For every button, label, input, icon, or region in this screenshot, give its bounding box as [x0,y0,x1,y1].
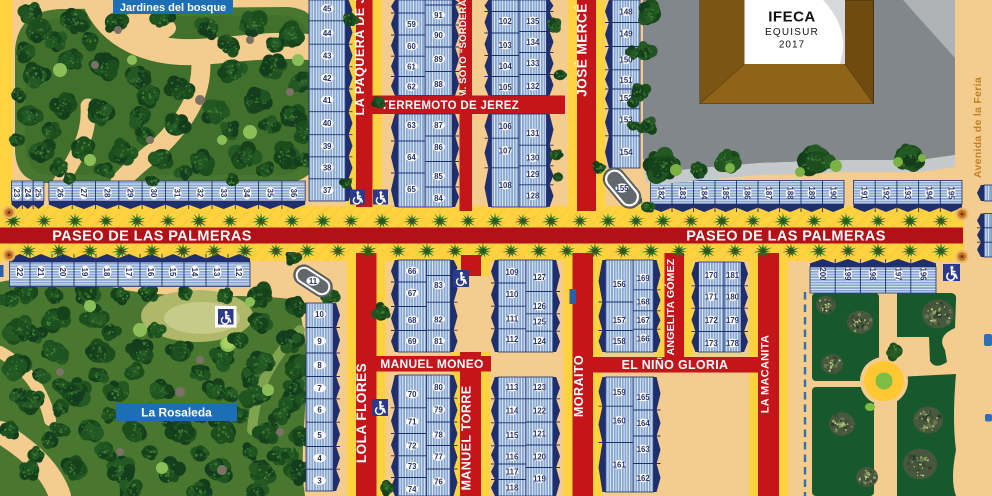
svg-text:197: 197 [893,267,902,280]
svg-text:36: 36 [289,189,298,198]
svg-text:180: 180 [726,292,740,301]
svg-text:82: 82 [434,315,443,324]
svg-text:77: 77 [434,452,443,461]
svg-text:199: 199 [843,267,852,281]
svg-text:113: 113 [506,383,519,392]
svg-text:185: 185 [721,186,730,200]
svg-text:PASEO DE LAS PALMERAS: PASEO DE LAS PALMERAS [686,229,886,245]
svg-text:M. SOTO “SORDERA”: M. SOTO “SORDERA” [458,0,469,97]
svg-text:116: 116 [506,452,519,461]
svg-text:165: 165 [637,393,651,402]
svg-text:ANGELITA GÓMEZ: ANGELITA GÓMEZ [664,258,677,355]
svg-text:16: 16 [146,268,155,277]
svg-text:184: 184 [699,186,708,200]
svg-text:71: 71 [408,417,417,426]
svg-text:104: 104 [499,62,513,71]
svg-text:160: 160 [613,416,627,425]
svg-text:186: 186 [742,186,751,200]
svg-text:134: 134 [526,38,540,47]
svg-text:188: 188 [785,186,794,200]
svg-text:61: 61 [407,62,416,71]
svg-text:59: 59 [407,20,416,29]
svg-text:191: 191 [860,186,869,200]
svg-text:114: 114 [506,406,519,415]
svg-text:192: 192 [881,186,890,200]
svg-text:105: 105 [499,83,513,92]
svg-text:62: 62 [407,82,416,91]
svg-text:41: 41 [323,96,332,105]
svg-text:151: 151 [619,76,633,85]
svg-text:168: 168 [637,297,651,306]
svg-text:85: 85 [434,172,443,181]
svg-text:119: 119 [533,474,546,483]
svg-text:67: 67 [408,289,417,298]
svg-text:28: 28 [102,189,111,198]
svg-text:JOSÉ MERCÉ: JOSÉ MERCÉ [575,3,590,97]
svg-text:107: 107 [499,146,512,155]
svg-text:LA MACANITA: LA MACANITA [760,335,772,413]
svg-text:22: 22 [15,268,24,277]
svg-text:34: 34 [242,189,251,198]
svg-text:183: 183 [678,186,687,200]
svg-text:171: 171 [705,292,719,301]
svg-text:72: 72 [408,441,417,450]
svg-text:193: 193 [903,186,912,200]
svg-text:5: 5 [317,431,322,440]
svg-text:20: 20 [58,268,67,277]
svg-text:37: 37 [323,186,332,195]
svg-text:91: 91 [434,11,443,20]
svg-text:14: 14 [190,268,199,277]
svg-text:MANUEL TORRE: MANUEL TORRE [460,385,474,490]
svg-text:170: 170 [705,271,719,280]
svg-text:MANUEL MONEO: MANUEL MONEO [380,357,483,371]
svg-text:76: 76 [434,477,443,486]
svg-text:MORAITO: MORAITO [572,355,586,417]
svg-text:110: 110 [506,290,519,299]
svg-text:40: 40 [323,119,332,128]
svg-text:102: 102 [499,17,513,26]
svg-text:161: 161 [613,460,627,469]
svg-text:169: 169 [637,274,651,283]
svg-text:166: 166 [637,334,651,343]
svg-text:26: 26 [56,189,65,198]
svg-text:25: 25 [34,189,43,198]
svg-text:73: 73 [408,462,417,471]
svg-text:148: 148 [619,7,633,16]
svg-text:84: 84 [434,194,443,203]
svg-text:2017: 2017 [779,40,805,51]
svg-text:83: 83 [434,281,443,290]
svg-text:PASEO DE LAS PALMERAS: PASEO DE LAS PALMERAS [52,229,252,245]
svg-text:195: 195 [946,186,955,200]
svg-text:162: 162 [637,474,651,483]
svg-text:130: 130 [526,153,540,162]
svg-text:109: 109 [505,268,519,277]
svg-text:149: 149 [619,29,633,38]
svg-text:31: 31 [172,189,181,198]
svg-text:63: 63 [407,121,416,130]
svg-text:65: 65 [407,185,416,194]
svg-text:128: 128 [526,191,540,200]
svg-text:196: 196 [919,267,928,281]
svg-text:124: 124 [533,337,547,346]
svg-text:156: 156 [613,280,627,289]
svg-text:178: 178 [726,339,740,348]
svg-text:17: 17 [124,268,133,277]
svg-text:13: 13 [212,268,221,277]
svg-text:78: 78 [434,430,443,439]
svg-text:79: 79 [434,405,443,414]
svg-text:33: 33 [219,189,228,198]
svg-text:133: 133 [526,59,540,68]
svg-text:167: 167 [637,316,650,325]
svg-text:10: 10 [315,310,324,319]
svg-text:182: 182 [656,186,665,200]
svg-text:131: 131 [526,129,540,138]
svg-text:115: 115 [506,431,519,440]
svg-text:164: 164 [637,419,651,428]
svg-text:158: 158 [613,337,627,346]
svg-text:118: 118 [506,483,519,492]
svg-text:7: 7 [317,384,321,393]
svg-text:126: 126 [533,302,547,311]
svg-text:163: 163 [637,445,651,454]
svg-text:111: 111 [506,314,519,323]
svg-text:LOLA FLORES: LOLA FLORES [354,363,369,463]
svg-text:EQUISUR: EQUISUR [765,27,819,38]
svg-text:173: 173 [705,339,719,348]
svg-text:23: 23 [12,189,21,198]
svg-text:24: 24 [23,189,32,198]
svg-text:121: 121 [533,429,547,438]
svg-text:117: 117 [506,467,519,476]
svg-text:120: 120 [533,452,547,461]
svg-text:81: 81 [434,337,443,346]
svg-text:179: 179 [726,316,740,325]
svg-text:9: 9 [317,337,322,346]
svg-text:90: 90 [434,31,443,40]
svg-text:123: 123 [533,383,547,392]
svg-text:15: 15 [168,268,177,277]
svg-text:122: 122 [533,406,547,415]
svg-text:12: 12 [234,268,243,277]
svg-text:127: 127 [533,273,546,282]
svg-text:44: 44 [323,29,332,38]
svg-text:172: 172 [705,316,719,325]
svg-text:70: 70 [408,390,417,399]
svg-text:129: 129 [526,170,540,179]
svg-text:30: 30 [149,189,158,198]
svg-text:159: 159 [613,388,627,397]
svg-text:189: 189 [807,186,816,200]
svg-text:88: 88 [434,80,443,89]
svg-text:27: 27 [79,189,88,198]
svg-text:86: 86 [434,143,443,152]
svg-text:198: 198 [868,267,877,281]
svg-text:38: 38 [323,163,332,172]
svg-text:3: 3 [317,476,322,485]
svg-text:108: 108 [499,181,513,190]
svg-text:29: 29 [126,189,135,198]
svg-text:154: 154 [619,148,633,157]
svg-text:4: 4 [317,454,322,463]
svg-text:74: 74 [408,485,417,494]
svg-text:112: 112 [506,335,519,344]
svg-text:89: 89 [434,55,443,64]
svg-text:IFECA: IFECA [768,9,816,26]
svg-text:45: 45 [323,4,332,13]
svg-text:43: 43 [323,51,332,60]
svg-text:21: 21 [36,268,45,277]
svg-text:69: 69 [408,337,417,346]
svg-text:TERREMOTO DE JEREZ: TERREMOTO DE JEREZ [381,100,519,112]
svg-text:135: 135 [526,17,540,26]
svg-text:194: 194 [925,186,934,200]
svg-text:68: 68 [408,316,417,325]
svg-text:64: 64 [407,153,416,162]
svg-text:6: 6 [317,405,322,414]
svg-text:35: 35 [265,189,274,198]
svg-text:EL NIÑO GLORIA: EL NIÑO GLORIA [622,357,729,372]
svg-text:181: 181 [726,271,740,280]
svg-text:32: 32 [196,189,205,198]
svg-text:18: 18 [102,268,111,277]
svg-text:42: 42 [323,74,332,83]
svg-text:190: 190 [828,186,837,200]
svg-text:66: 66 [408,267,417,276]
svg-text:106: 106 [499,122,513,131]
svg-text:80: 80 [434,383,443,392]
svg-text:125: 125 [533,317,547,326]
svg-text:103: 103 [499,41,513,50]
svg-text:200: 200 [818,267,827,281]
svg-text:39: 39 [323,142,332,151]
svg-text:87: 87 [434,121,443,130]
svg-text:187: 187 [764,186,773,199]
svg-text:132: 132 [526,82,540,91]
svg-text:19: 19 [80,268,89,277]
svg-text:8: 8 [317,361,322,370]
svg-text:157: 157 [613,316,626,325]
svg-text:60: 60 [407,42,416,51]
